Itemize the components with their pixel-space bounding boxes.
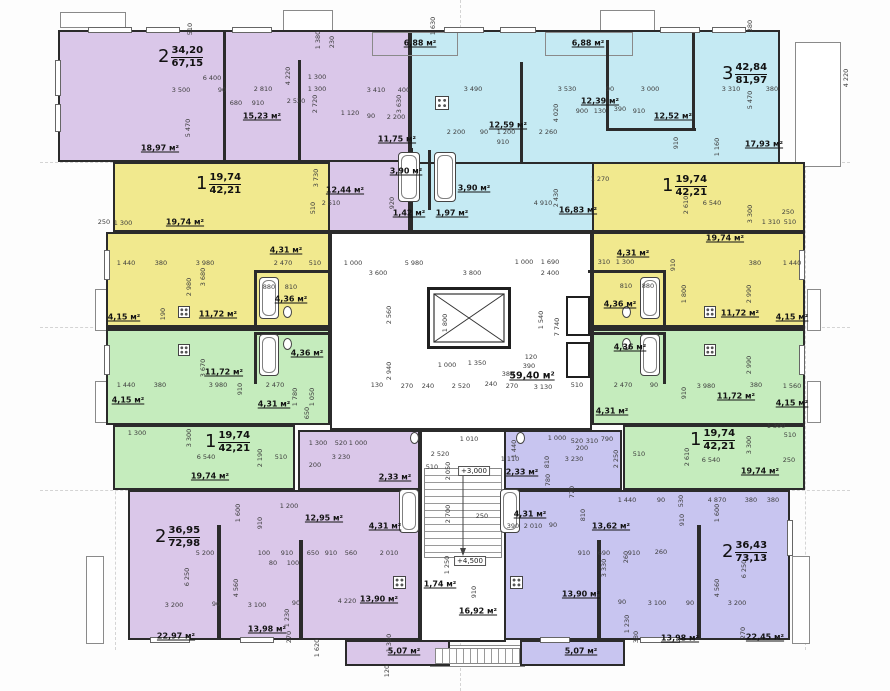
dimension-label: 230 — [328, 36, 336, 48]
dimension-label: 3 310 — [722, 85, 741, 93]
dimension-label: 250 — [783, 456, 795, 464]
dimension-label: 240 — [422, 382, 434, 390]
apartment-area-fraction: 19,74 42,21 — [675, 174, 707, 198]
dimension-label: 7 740 — [553, 318, 561, 337]
window-icon — [104, 250, 110, 280]
room-area-label: 18,97 м² — [141, 144, 179, 153]
dimension-label: 920 — [388, 197, 396, 209]
dimension-label: 2 610 — [682, 196, 690, 215]
dimension-label: 120 — [525, 353, 537, 361]
stove-icon — [704, 344, 716, 356]
room-area-label: 4,31 м² — [617, 249, 650, 258]
dimension-label: 3 980 — [697, 382, 716, 390]
dimension-label: 90 — [650, 381, 658, 389]
room-area-label: 1,97 м² — [436, 209, 469, 218]
dimension-label: 3 500 — [172, 86, 191, 94]
dimension-label: 1 600 — [234, 504, 242, 523]
dimension-label: 1 440 — [783, 259, 802, 267]
interior-wall — [588, 270, 666, 273]
window-icon — [240, 637, 274, 643]
interior-wall — [217, 525, 221, 640]
dimension-label: 2 260 — [539, 128, 558, 136]
stove-icon — [178, 344, 190, 356]
dimension-label: 380 — [154, 381, 166, 389]
room-area-label: 13,62 м² — [592, 522, 630, 531]
stove-icon — [393, 576, 406, 589]
apartment-rooms-count: 1 — [196, 175, 207, 193]
dimension-label: 1 560 — [783, 382, 802, 390]
dimension-label: 4 560 — [232, 579, 240, 598]
dimension-label: 1 300 — [309, 439, 328, 447]
dimension-label: 2 200 — [447, 128, 466, 136]
balcony-parapet — [283, 10, 333, 32]
dimension-label: 3 800 — [463, 269, 482, 277]
room-area-label: 4,31 м² — [514, 510, 547, 519]
dimension-label: 650 — [307, 549, 319, 557]
room-area-label: 19,74 м² — [741, 467, 779, 476]
vent-shaft — [566, 296, 590, 336]
room-area-label: 13,98 м² — [248, 625, 286, 634]
interior-wall — [663, 272, 666, 325]
dimension-label: 90 — [686, 599, 694, 607]
dimension-label: 5 470 — [184, 119, 192, 138]
dimension-label: 2 050 — [444, 462, 452, 481]
dimension-label: 520 — [335, 439, 347, 447]
bathtub-icon — [398, 152, 420, 202]
dimension-label: 910 — [578, 549, 590, 557]
dimension-label: 90 — [218, 86, 226, 94]
room-area-label: 4,15 м² — [776, 399, 809, 408]
room-area-label: 4,31 м² — [596, 407, 629, 416]
dimension-label: 2 810 — [254, 85, 273, 93]
dimension-label: 1 000 — [515, 258, 534, 266]
dimension-label: 3 200 — [728, 599, 747, 607]
dimension-label: 380 — [766, 85, 778, 93]
room-area-label: 13,90 м² — [562, 590, 600, 599]
window-icon — [787, 520, 793, 556]
room-area-label: 5,07 м² — [388, 647, 421, 656]
dimension-label: 2 520 — [287, 97, 306, 105]
dimension-label: 510 — [571, 381, 583, 389]
bathtub-icon — [259, 334, 279, 376]
interior-wall — [223, 32, 226, 162]
room-area-label: 19,74 м² — [166, 218, 204, 227]
dimension-label: 270 — [506, 382, 518, 390]
dimension-label: 1 300 — [308, 85, 327, 93]
dimension-label: 910 — [470, 586, 478, 598]
apartment-rooms-count: 3 — [722, 65, 733, 83]
dimension-label: 2 940 — [385, 362, 393, 381]
dimension-label: 690 — [598, 549, 610, 557]
dimension-label: 4 910 — [534, 199, 553, 207]
stove-icon — [510, 576, 523, 589]
dimension-label: 90 — [549, 521, 557, 529]
window-icon — [232, 27, 272, 33]
dimension-label: 1 780 — [291, 388, 299, 407]
dimension-label: 3 680 — [199, 268, 207, 287]
dimension-label: 3 100 — [248, 601, 267, 609]
dimension-label: 390 — [507, 522, 519, 530]
toilet-icon — [283, 306, 292, 318]
room-area-label: 22,45 м² — [746, 633, 784, 642]
room-area-label: 3,90 м² — [458, 184, 491, 193]
dimension-label: 510 — [309, 202, 317, 214]
room-area-label: 13,98 м² — [661, 634, 699, 643]
dimension-label: 250 — [476, 512, 488, 520]
floor-plan-canvas: 2 34,20 67,15 3 42,84 81,97 1 19,74 42,2… — [0, 0, 890, 691]
dimension-label: 200 — [576, 444, 588, 452]
dimension-label: 910 — [628, 549, 640, 557]
dimension-label: 80 — [269, 559, 277, 567]
room-area-label: 15,23 м² — [243, 112, 281, 121]
toilet-icon — [410, 432, 419, 444]
room-area-label: 4,31 м² — [258, 400, 291, 409]
window-icon — [540, 637, 570, 643]
dimension-label: 810 — [620, 282, 632, 290]
dimension-label: 1 600 — [713, 504, 721, 523]
dimension-label: 130 — [594, 107, 606, 115]
dimension-label: 1 300 — [128, 429, 147, 437]
room-area-label: 16,83 м² — [559, 206, 597, 215]
dimension-label: 680 — [230, 99, 242, 107]
dimension-label: 910 — [325, 549, 337, 557]
dimension-label: 90 — [657, 496, 665, 504]
dimension-label: 90 — [606, 85, 614, 93]
dimension-label: 90 — [367, 112, 375, 120]
dimension-label: 3 200 — [165, 601, 184, 609]
room-area-label: 16,92 м² — [459, 607, 497, 616]
bathtub-icon — [399, 489, 419, 533]
interior-wall — [692, 30, 695, 130]
dimension-label: 190 — [159, 308, 167, 320]
apartment-area-fraction: 36,43 73,13 — [735, 540, 767, 564]
room-area-label: 4,36 м² — [604, 300, 637, 309]
apartment-rooms-count: 1 — [662, 177, 673, 195]
interior-wall — [428, 150, 431, 210]
dimension-label: 6 250 — [183, 568, 191, 587]
dimension-label: 1 300 — [308, 73, 327, 81]
dimension-label: 4 220 — [338, 597, 357, 605]
dimension-label: 510 — [784, 218, 796, 226]
apartment-area-fraction: 19,74 42,21 — [209, 172, 241, 196]
room-area-label: 4,36 м² — [291, 349, 324, 358]
dimension-label: 2 430 — [552, 189, 560, 208]
dimension-label: 1 620 — [313, 639, 321, 658]
apartment-rooms-count: 2 — [155, 528, 166, 546]
dimension-label: 380 — [746, 20, 754, 32]
interior-wall — [254, 334, 257, 384]
dimension-label: 910 — [497, 138, 509, 146]
dimension-label: 2 990 — [745, 356, 753, 375]
balcony-parapet — [807, 289, 821, 331]
dimension-label: 910 — [678, 514, 686, 526]
dimension-label: 3 980 — [209, 381, 228, 389]
dimension-label: 810 — [285, 283, 297, 291]
dimension-label: 510 — [275, 453, 287, 461]
room-area-label: 19,74 м² — [706, 234, 744, 243]
dimension-label: 910 — [281, 549, 293, 557]
dimension-label: 3 730 — [312, 169, 320, 188]
dimension-label: 90 — [480, 128, 488, 136]
dimension-label: 910 — [633, 107, 645, 115]
room-area-label: 1,74 м² — [424, 580, 457, 589]
room-area-label: 4,15 м² — [112, 396, 145, 405]
stove-icon — [435, 96, 449, 110]
dimension-label: 1 630 — [429, 17, 437, 36]
room-area-label: 4,36 м² — [614, 343, 647, 352]
dimension-label: 1 300 — [616, 258, 635, 266]
dimension-label: 380 — [155, 259, 167, 267]
dimension-label: 120 — [383, 665, 391, 677]
dimension-label: 1 160 — [713, 138, 721, 157]
dimension-label: 2 200 — [387, 113, 406, 121]
window-icon — [500, 27, 536, 33]
dimension-label: 270 — [285, 631, 293, 643]
dimension-label: 880 — [642, 282, 654, 290]
dimension-label: 5 470 — [746, 91, 754, 110]
dimension-label: 1 270 — [591, 175, 610, 183]
room-area-label: 1,42 м² — [393, 209, 426, 218]
room-area-label: 11,72 м² — [205, 368, 243, 377]
window-icon — [104, 345, 110, 375]
vent-shaft — [566, 342, 590, 378]
dimension-label: 2 190 — [256, 449, 264, 468]
window-icon — [55, 60, 61, 96]
interior-wall — [606, 128, 696, 131]
balcony-parapet — [792, 556, 810, 644]
window-icon — [146, 27, 180, 33]
room-area-label: 4,15 м² — [776, 313, 809, 322]
dimension-label: 4 220 — [284, 67, 292, 86]
room-area-label: 17,93 м² — [745, 140, 783, 149]
room-area-label: 4,36 м² — [275, 295, 308, 304]
apartment-label-top-right: 3 42,84 81,97 — [722, 62, 767, 86]
apartment-label-mid-right-yellow: 1 19,74 42,21 — [662, 174, 707, 198]
dimension-label: 1 000 — [349, 439, 368, 447]
dimension-label: 2 010 — [524, 522, 543, 530]
dimension-label: 6 400 — [203, 74, 222, 82]
interior-wall — [663, 334, 666, 384]
dimension-label: 2 470 — [274, 259, 293, 267]
stove-icon — [178, 306, 190, 318]
bathtub-icon — [434, 152, 456, 202]
dimension-label: 2 720 — [311, 95, 319, 114]
level-mark: +4,500 — [454, 556, 486, 566]
dimension-label: 4 220 — [842, 69, 850, 88]
apartment-label-top-left: 2 34,20 67,15 — [158, 45, 203, 69]
dimension-label: 390 — [523, 362, 535, 370]
apartment-label-bottom-right: 2 36,43 73,13 — [722, 540, 767, 564]
dimension-label: 2 700 — [444, 505, 452, 524]
dimension-label: 790 — [601, 435, 613, 443]
room-area-label: 12,52 м² — [654, 112, 692, 121]
apartment-region-top-left — [58, 30, 410, 162]
room-area-label: 19,74 м² — [191, 472, 229, 481]
dimension-label: 1 350 — [468, 359, 487, 367]
balcony-parapet — [600, 10, 655, 32]
dimension-label: 380 — [767, 496, 779, 504]
apartment-rooms-count: 2 — [158, 48, 169, 66]
dimension-label: 1 440 — [117, 381, 136, 389]
apartment-rooms-count: 2 — [722, 543, 733, 561]
apartment-area-fraction: 34,20 67,15 — [171, 45, 203, 69]
dimension-label: 810 — [543, 456, 551, 468]
dimension-label: 3 490 — [464, 85, 483, 93]
interior-wall — [520, 62, 523, 162]
apartment-rooms-count: 1 — [205, 433, 216, 451]
dimension-label: 90 — [292, 599, 300, 607]
dimension-label: 3 300 — [745, 436, 753, 455]
dimension-label: 3 530 — [558, 85, 577, 93]
dimension-label: 1 440 — [510, 440, 518, 459]
level-mark: +3,000 — [458, 466, 490, 476]
dimension-label: 2 990 — [745, 285, 753, 304]
window-icon — [660, 27, 700, 33]
dimension-label: 1 000 — [438, 361, 457, 369]
dimension-label: 560 — [345, 549, 357, 557]
dimension-label: 400 — [398, 86, 410, 94]
dimension-label: 380 — [632, 631, 640, 643]
dimension-label: 3 230 — [332, 453, 351, 461]
dimension-label: 130 — [371, 381, 383, 389]
dimension-label: 2 980 — [185, 278, 193, 297]
dimension-label: 90 — [618, 598, 626, 606]
dimension-label: 100 — [287, 559, 299, 567]
dimension-label: 900 — [576, 107, 588, 115]
dimension-label: 810 — [579, 509, 587, 521]
apartment-area-fraction: 42,84 81,97 — [735, 62, 767, 86]
room-area-label: 11,72 м² — [721, 309, 759, 318]
bathtub-icon — [640, 334, 660, 376]
dimension-label: 1 690 — [541, 258, 560, 266]
dimension-label: 100 — [258, 549, 270, 557]
dimension-label: 910 — [680, 387, 688, 399]
dimension-label: 1 120 — [341, 109, 360, 117]
party-wall — [106, 325, 330, 329]
room-area-label: 2,33 м² — [379, 473, 412, 482]
room-area-label: 12,95 м² — [305, 514, 343, 523]
dimension-label: 3 330 — [600, 559, 608, 578]
dimension-label: 1 800 — [680, 285, 688, 304]
dimension-label: 1 300 — [114, 219, 133, 227]
dimension-label: 3 100 — [648, 599, 667, 607]
dimension-label: 650 — [303, 407, 311, 419]
apartment-area-fraction: 19,74 42,21 — [703, 428, 735, 452]
window-icon — [712, 27, 746, 33]
room-area-label: 2,33 м² — [506, 468, 539, 477]
room-area-label: 5,07 м² — [565, 647, 598, 656]
dimension-label: 510 — [309, 259, 321, 267]
dimension-label: 1 230 — [623, 615, 631, 634]
window-icon — [444, 27, 484, 33]
dimension-label: 380 — [750, 381, 762, 389]
dimension-label: 3 600 — [369, 269, 388, 277]
room-area-label: 6,88 м² — [404, 39, 437, 48]
room-area-label: 4,31 м² — [270, 246, 303, 255]
dimension-label: 6 540 — [197, 453, 216, 461]
room-area-label: 12,39 м² — [581, 97, 619, 106]
balcony-parapet — [807, 381, 821, 423]
dimension-label: 390 — [614, 105, 626, 113]
dimension-label: 910 — [669, 259, 677, 271]
dimension-label: 510 — [633, 450, 645, 458]
dimension-label: 2 510 — [322, 199, 341, 207]
dimension-label: 2 560 — [385, 306, 393, 325]
apartment-area-fraction: 36,95 72,98 — [168, 525, 200, 549]
apartment-area-fraction: 19,74 42,21 — [218, 430, 250, 454]
dimension-label: 4 560 — [713, 579, 721, 598]
corridor-area-label: 59,40 м² — [509, 371, 554, 382]
dimension-label: 910 — [256, 517, 264, 529]
room-area-label: 3,90 м² — [390, 167, 423, 176]
room-area-label: 13,90 м² — [360, 595, 398, 604]
window-icon — [799, 345, 805, 375]
dimension-label: 250 — [98, 218, 110, 226]
apartment-label-bottom-left: 2 36,95 72,98 — [155, 525, 200, 549]
dimension-label: 770 — [568, 486, 576, 498]
dimension-label: 250 — [782, 208, 794, 216]
dimension-label: 1 300 — [767, 422, 786, 430]
party-wall — [592, 325, 805, 329]
dimension-label: 910 — [672, 137, 680, 149]
room-area-label: 12,44 м² — [326, 186, 364, 195]
dimension-label: 3 630 — [395, 95, 403, 114]
room-area-label: 4,15 м² — [108, 313, 141, 322]
room-area-label: 4,31 м² — [369, 522, 402, 531]
dimension-label: 5 200 — [196, 549, 215, 557]
dimension-label: 200 — [309, 461, 321, 469]
room-area-label: 11,72 м² — [199, 310, 237, 319]
apartment-region-mid-left-green — [106, 329, 330, 425]
room-area-label: 11,72 м² — [717, 392, 755, 401]
dimension-label: 2 520 — [452, 382, 471, 390]
balcony-parapet — [795, 42, 841, 167]
dimension-label: 3 300 — [746, 205, 754, 224]
dimension-label: 1 440 — [618, 496, 637, 504]
window-icon — [55, 104, 61, 132]
dimension-label: 1 310 — [762, 218, 781, 226]
dimension-label: 2 520 — [431, 450, 450, 458]
dimension-label: 910 — [252, 99, 264, 107]
dimension-label: 1 250 — [443, 556, 451, 575]
dimension-label: 1 440 — [117, 259, 136, 267]
dimension-label: 510 — [186, 23, 194, 35]
apartment-rooms-count: 1 — [690, 431, 701, 449]
dimension-label: 510 — [784, 431, 796, 439]
dimension-label: 3 000 — [641, 85, 660, 93]
dimension-label: 3 410 — [367, 86, 386, 94]
room-area-label: 22,97 м² — [157, 632, 195, 641]
dimension-label: 4 020 — [552, 104, 560, 123]
dimension-label: 510 — [426, 463, 438, 471]
interior-wall — [299, 540, 303, 640]
dimension-label: 910 — [236, 383, 244, 395]
interior-wall — [697, 525, 701, 640]
dimension-label: 90 — [212, 600, 220, 608]
interior-wall — [254, 270, 332, 273]
interior-wall — [298, 60, 301, 162]
dimension-label: 240 — [485, 380, 497, 388]
balcony-parapet — [60, 12, 126, 28]
dimension-label: 5 980 — [405, 259, 424, 267]
dimension-label: 2 010 — [380, 549, 399, 557]
room-area-label: 12,59 м² — [489, 121, 527, 130]
dimension-label: 1 380 — [314, 31, 322, 50]
dimension-label: 3 130 — [534, 383, 553, 391]
dimension-label: 1 050 — [308, 388, 316, 407]
stair-direction-arrow — [458, 470, 468, 556]
dimension-label: 310 — [598, 258, 610, 266]
